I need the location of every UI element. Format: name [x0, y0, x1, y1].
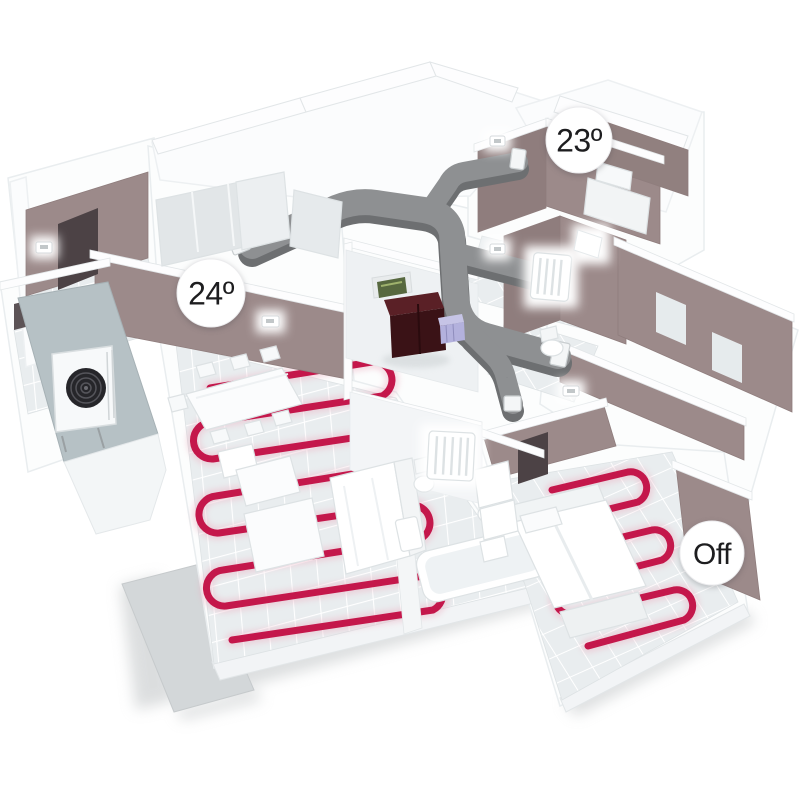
radiator-bathroom-mid	[530, 252, 572, 301]
temp-badge-bedroom-off[interactable]: Off	[680, 521, 744, 585]
radiator-hall	[427, 431, 475, 481]
temp-badge-bedroom-off-label: Off	[693, 538, 732, 571]
thermostat-bathroom-mid	[484, 238, 511, 260]
temp-badge-bathroom-top[interactable]: 23º	[546, 107, 612, 173]
temp-badge-living-room-label: 24º	[188, 276, 235, 312]
temp-badge-bathroom-top-label: 23º	[556, 123, 603, 159]
floorplan-canvas: 24º 23º Off	[0, 0, 800, 800]
isometric-floorplan: 24º 23º Off	[0, 0, 800, 800]
thermostat-kitchen	[256, 310, 285, 333]
thermostat-bedroom	[557, 380, 585, 402]
thermostat-top-left	[30, 236, 58, 259]
temp-badge-living-room[interactable]: 24º	[177, 259, 245, 327]
thermostat-bathroom-top	[484, 130, 511, 152]
